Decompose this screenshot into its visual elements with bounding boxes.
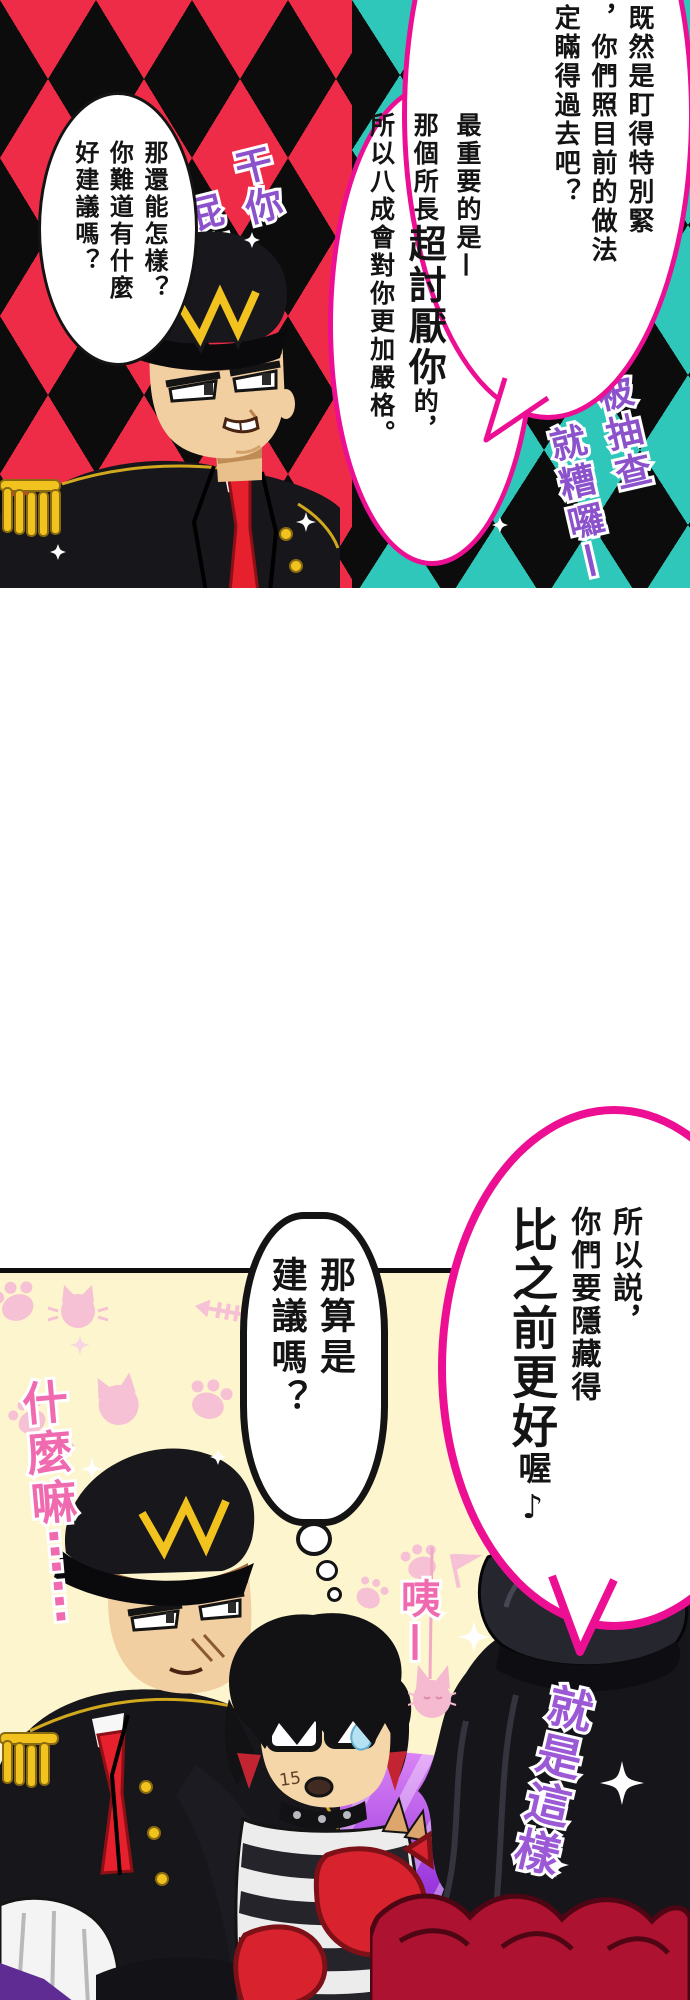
dialogue-span: 那個所長 [410,112,439,224]
dialogue-col: 你難道有什麼 [105,140,133,358]
dialogue-col: 好建議嗎？ [70,140,98,358]
dialogue-left: 那還能怎樣？ 你難道有什麼 好建議嗎？ [52,140,174,358]
thought-trail-dot [327,1587,342,1602]
epaulette [0,480,60,536]
dialogue-span-emphasis: 比之前更好 [505,1206,559,1451]
red-mitten [236,1927,325,2000]
panel-top: 干你 屁事 要是被抽查 就糟囉— [0,0,690,588]
dialogue-col: 定瞞得過去吧？ [549,4,579,424]
sfx-eh: 咦— [400,1578,446,1666]
thought-trail-dot [296,1522,332,1556]
dialogue-col: 所以八成會對你更加嚴格。 [366,112,395,558]
dialogue-span: 喔♪ [513,1451,552,1529]
dialogue-col: 建議嗎？ [265,1256,306,1506]
cat-doodle [48,1285,108,1328]
dialogue-col: ，你們照目前的做法 [586,4,616,424]
dialogue-col: 所以説， [607,1206,642,1636]
dialogue-thought: 那算是 建議嗎？ [254,1256,362,1506]
dialogue-center: 最重要的是— 那個所長超討厭你的， 所以八成會對你更加嚴格。 [346,112,488,558]
dialogue-span-emphasis: 超討厭你 [402,224,446,388]
dialogue-col: 比之前更好喔♪ [505,1206,558,1636]
cheek-mark-15: 15 [278,1768,302,1791]
epaulette [0,1733,58,1787]
dialogue-col: 那個所長超討厭你的， [402,112,446,558]
paw-doodle [184,1374,235,1424]
paw-doodle [0,1275,42,1327]
dialogue-col: 那算是 [314,1256,355,1506]
dialogue-span: 的， [410,388,439,444]
comic-page: 干你 屁事 要是被抽查 就糟囉— [0,0,690,2000]
open-mouth [306,1778,332,1796]
dialogue-top-right: 既然是盯得特別緊 ，你們照目前的做法 定瞞得過去吧？ [500,4,660,424]
dialogue-col: 你們要隱藏得 [565,1206,600,1636]
thought-trail-dot [316,1560,338,1581]
red-ruffle [370,1896,690,2000]
dialogue-pink: 所以説， 你們要隱藏得 比之前更好喔♪ [456,1206,648,1636]
dialogue-col: 既然是盯得特別緊 [623,4,653,424]
dialogue-col: 那還能怎樣？ [139,140,167,358]
dialogue-col: 最重要的是— [452,112,481,558]
cat-doodle [94,1372,142,1428]
